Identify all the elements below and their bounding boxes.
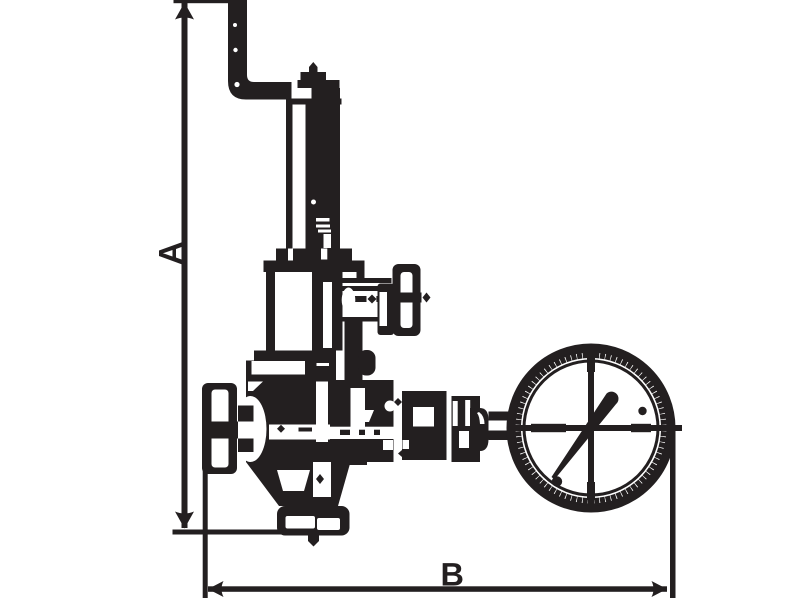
svg-text:B: B <box>440 556 464 592</box>
svg-text:A: A <box>153 242 189 265</box>
